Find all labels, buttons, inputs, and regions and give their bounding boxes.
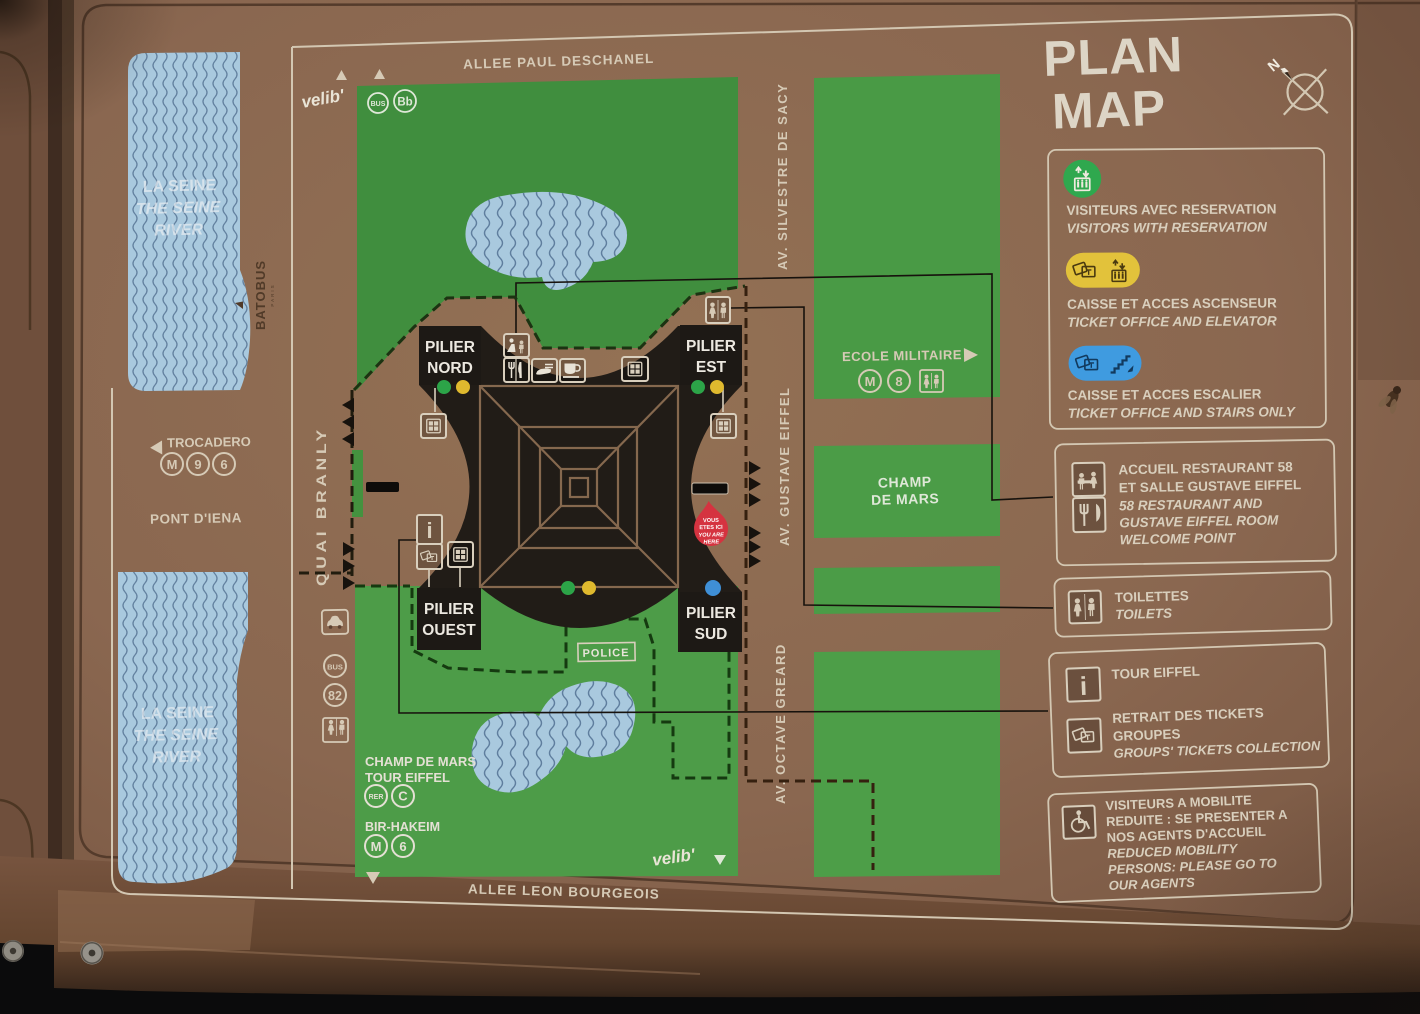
svg-text:RIVER: RIVER — [152, 748, 202, 766]
svg-text:BUS: BUS — [371, 101, 386, 108]
svg-text:POLICE: POLICE — [582, 647, 629, 660]
svg-text:PILIER: PILIER — [686, 338, 736, 355]
svg-text:82: 82 — [328, 689, 342, 703]
svg-text:HERE: HERE — [703, 539, 719, 545]
svg-text:PONT D'IENA: PONT D'IENA — [150, 510, 242, 527]
svg-text:RER: RER — [369, 794, 384, 801]
svg-text:AV. SILVESTRE DE SACY: AV. SILVESTRE DE SACY — [775, 83, 790, 270]
svg-text:PARIS: PARIS — [270, 283, 275, 306]
svg-text:C: C — [398, 789, 408, 804]
svg-text:M: M — [371, 839, 382, 854]
svg-text:MAP: MAP — [1051, 80, 1167, 140]
svg-text:ET SALLE GUSTAVE EIFFEL: ET SALLE GUSTAVE EIFFEL — [1119, 477, 1302, 495]
svg-text:i: i — [426, 518, 432, 543]
svg-text:PILIER: PILIER — [424, 601, 474, 618]
svg-text:BUS: BUS — [327, 663, 343, 672]
svg-text:58 RESTAURANT AND: 58 RESTAURANT AND — [1119, 496, 1263, 514]
svg-text:SUD: SUD — [695, 626, 728, 643]
svg-text:PLAN: PLAN — [1042, 26, 1184, 87]
svg-text:6: 6 — [220, 457, 227, 472]
svg-text:OUEST: OUEST — [422, 622, 476, 639]
svg-text:DE MARS: DE MARS — [871, 490, 939, 508]
svg-text:GUSTAVE EIFFEL ROOM: GUSTAVE EIFFEL ROOM — [1119, 513, 1279, 531]
svg-text:THE SEINE: THE SEINE — [134, 726, 220, 745]
svg-text:LA SEINE: LA SEINE — [141, 704, 215, 723]
svg-text:NORD: NORD — [427, 360, 473, 377]
svg-text:TOUR EIFFEL: TOUR EIFFEL — [365, 770, 450, 785]
svg-text:TROCADERO: TROCADERO — [167, 434, 251, 450]
svg-text:PILIER: PILIER — [686, 605, 736, 622]
svg-text:CHAMP: CHAMP — [878, 473, 932, 490]
svg-text:ACCUEIL RESTAURANT 58: ACCUEIL RESTAURANT 58 — [1118, 459, 1293, 477]
svg-text:9: 9 — [194, 457, 201, 472]
svg-text:Bb: Bb — [397, 97, 412, 109]
svg-text:VOUS: VOUS — [703, 518, 719, 524]
svg-text:CHAMP DE MARS: CHAMP DE MARS — [365, 754, 476, 769]
svg-text:TICKET OFFICE AND STAIRS ONLY: TICKET OFFICE AND STAIRS ONLY — [1068, 404, 1297, 421]
svg-text:8: 8 — [895, 374, 902, 389]
svg-text:ETES ICI: ETES ICI — [699, 525, 723, 531]
svg-text:AV. GUSTAVE EIFFEL: AV. GUSTAVE EIFFEL — [777, 387, 792, 546]
svg-text:CAISSE ET ACCES ASCENSEUR: CAISSE ET ACCES ASCENSEUR — [1067, 295, 1277, 311]
svg-text:BIR-HAKEIM: BIR-HAKEIM — [365, 820, 440, 834]
svg-text:QUAI BRANLY: QUAI BRANLY — [313, 426, 329, 586]
svg-text:M: M — [865, 374, 876, 389]
svg-text:6: 6 — [399, 839, 406, 854]
svg-text:VISITEURS AVEC RESERVATION: VISITEURS AVEC RESERVATION — [1066, 201, 1276, 217]
svg-text:WELCOME POINT: WELCOME POINT — [1120, 530, 1237, 547]
svg-text:CAISSE ET ACCES ESCALIER: CAISSE ET ACCES ESCALIER — [1068, 386, 1262, 402]
svg-text:PILIER: PILIER — [425, 339, 475, 356]
svg-text:EST: EST — [696, 359, 727, 376]
svg-text:ECOLE MILITAIRE: ECOLE MILITAIRE — [842, 347, 962, 364]
svg-text:BATOBUS: BATOBUS — [253, 260, 268, 330]
svg-text:M: M — [167, 457, 178, 472]
svg-text:TICKET OFFICE AND ELEVATOR: TICKET OFFICE AND ELEVATOR — [1067, 313, 1277, 329]
svg-text:YOU ARE: YOU ARE — [698, 532, 724, 538]
svg-text:VISITORS WITH RESERVATION: VISITORS WITH RESERVATION — [1067, 219, 1268, 235]
